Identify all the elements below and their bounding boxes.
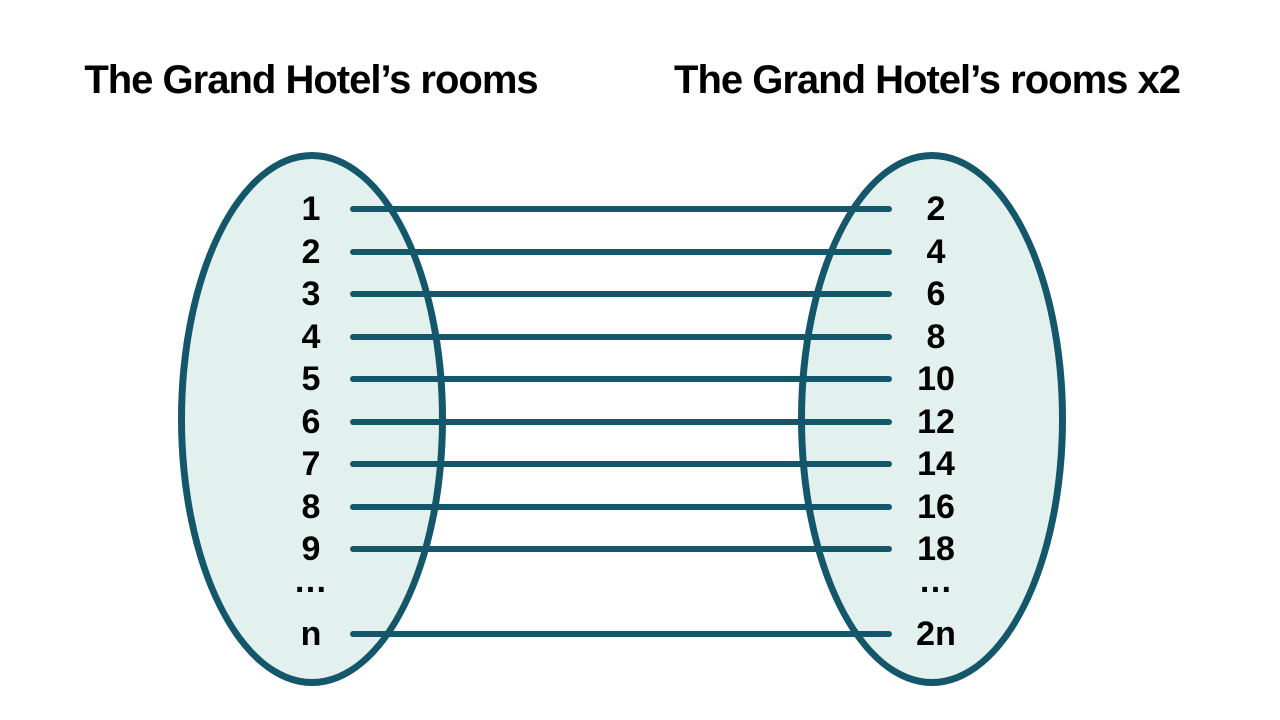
mapping-line-7-14	[350, 461, 892, 467]
right-set-element: 4	[927, 231, 946, 273]
right-set-element: 6	[927, 273, 946, 315]
right-set-element: 8	[927, 316, 946, 358]
mapping-line-3-6	[350, 291, 892, 297]
mapping-line-n-2n	[350, 631, 892, 637]
right-set-element: 12	[917, 401, 955, 443]
left-set-element: n	[301, 613, 322, 655]
left-set-element: 6	[302, 401, 321, 443]
hilbert-hotel-bijection-diagram: The Grand Hotel’s rooms The Grand Hotel’…	[0, 0, 1280, 720]
right-set-element: 16	[917, 486, 955, 528]
mapping-line-8-16	[350, 504, 892, 510]
right-set-element: 2n	[916, 613, 956, 655]
mapping-line-1-2	[350, 206, 892, 212]
right-set-element: 2	[927, 188, 946, 230]
left-set-ellipsis: …	[294, 560, 329, 602]
right-set-title: The Grand Hotel’s rooms x2	[674, 58, 1180, 103]
right-set-element: 10	[917, 358, 955, 400]
left-set-element: 1	[302, 188, 321, 230]
mapping-line-9-18	[350, 546, 892, 552]
left-set-element: 5	[302, 358, 321, 400]
left-set-title: The Grand Hotel’s rooms	[84, 58, 537, 103]
left-set-element: 2	[302, 231, 321, 273]
mapping-line-2-4	[350, 249, 892, 255]
mapping-line-6-12	[350, 419, 892, 425]
left-set-element: 4	[302, 316, 321, 358]
right-set-element: 14	[917, 443, 955, 485]
mapping-line-5-10	[350, 376, 892, 382]
left-set-element: 3	[302, 273, 321, 315]
mapping-line-4-8	[350, 334, 892, 340]
left-set-element: 7	[302, 443, 321, 485]
right-set-ellipsis: …	[919, 560, 954, 602]
left-set-element: 8	[302, 486, 321, 528]
